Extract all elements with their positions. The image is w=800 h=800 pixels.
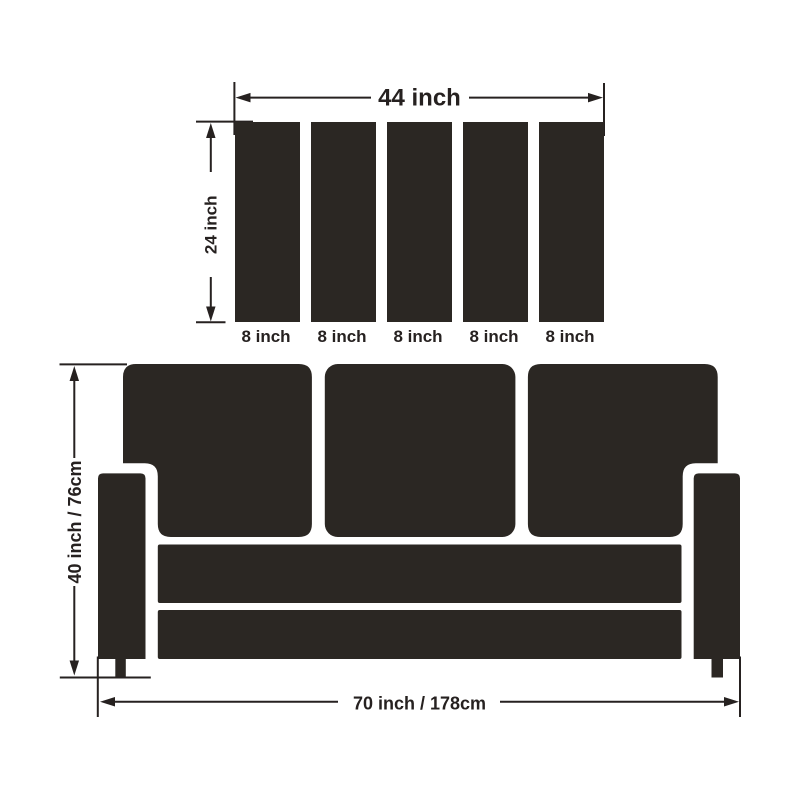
svg-text:8 inch: 8 inch bbox=[317, 327, 366, 346]
svg-text:70 inch / 178cm: 70 inch / 178cm bbox=[353, 694, 486, 714]
svg-text:8 inch: 8 inch bbox=[469, 327, 518, 346]
svg-text:24 inch: 24 inch bbox=[202, 196, 221, 255]
svg-text:8 inch: 8 inch bbox=[545, 327, 594, 346]
svg-text:8 inch: 8 inch bbox=[393, 327, 442, 346]
svg-text:44 inch: 44 inch bbox=[378, 85, 461, 112]
svg-text:8 inch: 8 inch bbox=[241, 327, 290, 346]
svg-text:40 inch / 76cm: 40 inch / 76cm bbox=[65, 460, 85, 583]
